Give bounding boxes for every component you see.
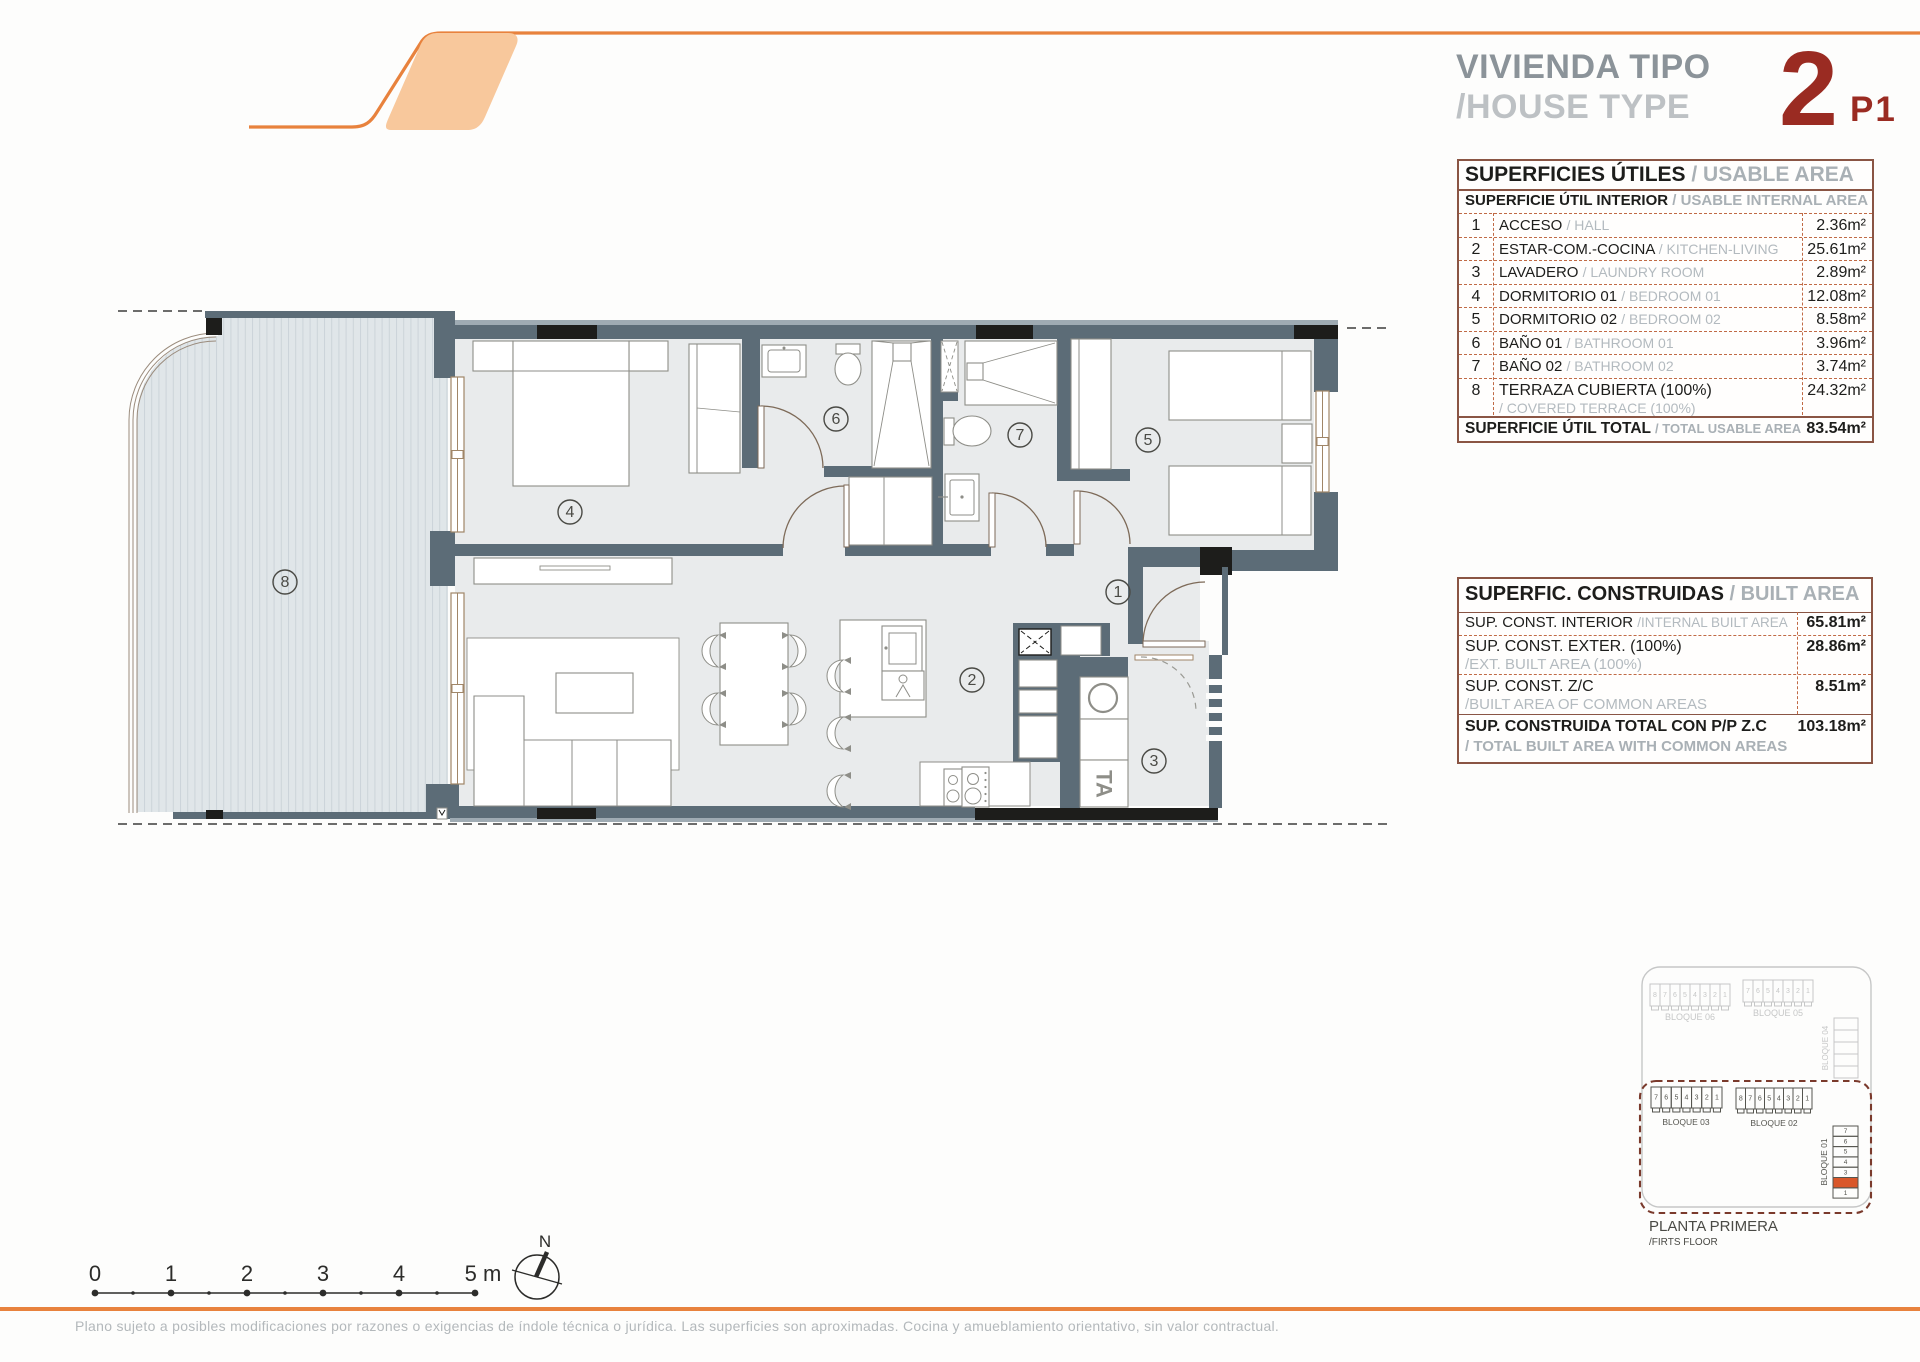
- svg-text:4: 4: [1844, 1159, 1848, 1166]
- svg-text:2: 2: [1796, 1096, 1800, 1103]
- svg-text:4: 4: [1685, 1095, 1689, 1102]
- svg-text:6: 6: [1844, 1138, 1848, 1145]
- svg-text:3: 3: [1844, 1169, 1848, 1176]
- svg-text:2: 2: [1705, 1095, 1709, 1102]
- svg-text:4: 4: [566, 504, 575, 521]
- svg-text:3: 3: [1786, 988, 1790, 995]
- svg-text:1: 1: [1806, 988, 1810, 995]
- svg-text:3: 3: [1703, 992, 1707, 999]
- svg-text:3: 3: [317, 1261, 329, 1286]
- svg-text:7: 7: [1748, 1096, 1752, 1103]
- svg-text:2: 2: [1713, 992, 1717, 999]
- svg-text:2: 2: [1796, 988, 1800, 995]
- svg-text:1: 1: [1715, 1095, 1719, 1102]
- svg-text:6: 6: [832, 411, 841, 428]
- svg-text:4: 4: [1777, 1096, 1781, 1103]
- svg-text:6: 6: [1758, 1096, 1762, 1103]
- svg-text:1: 1: [1805, 1096, 1809, 1103]
- svg-text:BLOQUE 02: BLOQUE 02: [1750, 1118, 1798, 1128]
- svg-text:7: 7: [1844, 1128, 1848, 1135]
- svg-text:5: 5: [1844, 1149, 1848, 1156]
- svg-text:5 m: 5 m: [465, 1261, 502, 1286]
- svg-text:6: 6: [1664, 1095, 1668, 1102]
- svg-text:7: 7: [1654, 1095, 1658, 1102]
- svg-text:N: N: [539, 1232, 551, 1251]
- svg-text:3: 3: [1695, 1095, 1699, 1102]
- svg-text:3: 3: [1150, 753, 1159, 770]
- svg-text:5: 5: [1766, 988, 1770, 995]
- svg-text:6: 6: [1756, 988, 1760, 995]
- svg-text:5: 5: [1683, 992, 1687, 999]
- svg-text:TA: TA: [1092, 770, 1117, 798]
- svg-text:7: 7: [1663, 992, 1667, 999]
- svg-text:0: 0: [89, 1261, 101, 1286]
- svg-text:2: 2: [241, 1261, 253, 1286]
- svg-text:4: 4: [1776, 988, 1780, 995]
- svg-text:1: 1: [165, 1261, 177, 1286]
- svg-text:8: 8: [1653, 992, 1657, 999]
- svg-text:7: 7: [1746, 988, 1750, 995]
- svg-text:BLOQUE 01: BLOQUE 01: [1819, 1138, 1829, 1186]
- svg-text:7: 7: [1016, 427, 1025, 444]
- svg-text:BLOQUE 04: BLOQUE 04: [1821, 1025, 1830, 1070]
- svg-text:4: 4: [393, 1261, 405, 1286]
- svg-text:PLANTA PRIMERA: PLANTA PRIMERA: [1649, 1218, 1778, 1235]
- svg-text:2: 2: [968, 672, 977, 689]
- svg-text:8: 8: [281, 574, 290, 591]
- svg-text:3: 3: [1786, 1096, 1790, 1103]
- svg-text:5: 5: [1674, 1095, 1678, 1102]
- svg-text:BLOQUE 06: BLOQUE 06: [1665, 1012, 1715, 1022]
- svg-text:1: 1: [1844, 1190, 1848, 1197]
- svg-text:6: 6: [1673, 992, 1677, 999]
- svg-text:5: 5: [1767, 1096, 1771, 1103]
- svg-text:1: 1: [1723, 992, 1727, 999]
- svg-text:8: 8: [1739, 1096, 1743, 1103]
- svg-text:5: 5: [1144, 432, 1153, 449]
- svg-text:BLOQUE 03: BLOQUE 03: [1662, 1117, 1710, 1127]
- svg-text:/FIRTS FLOOR: /FIRTS FLOOR: [1649, 1237, 1718, 1248]
- svg-text:4: 4: [1693, 992, 1697, 999]
- svg-text:BLOQUE 05: BLOQUE 05: [1753, 1008, 1803, 1018]
- svg-text:1: 1: [1114, 584, 1123, 601]
